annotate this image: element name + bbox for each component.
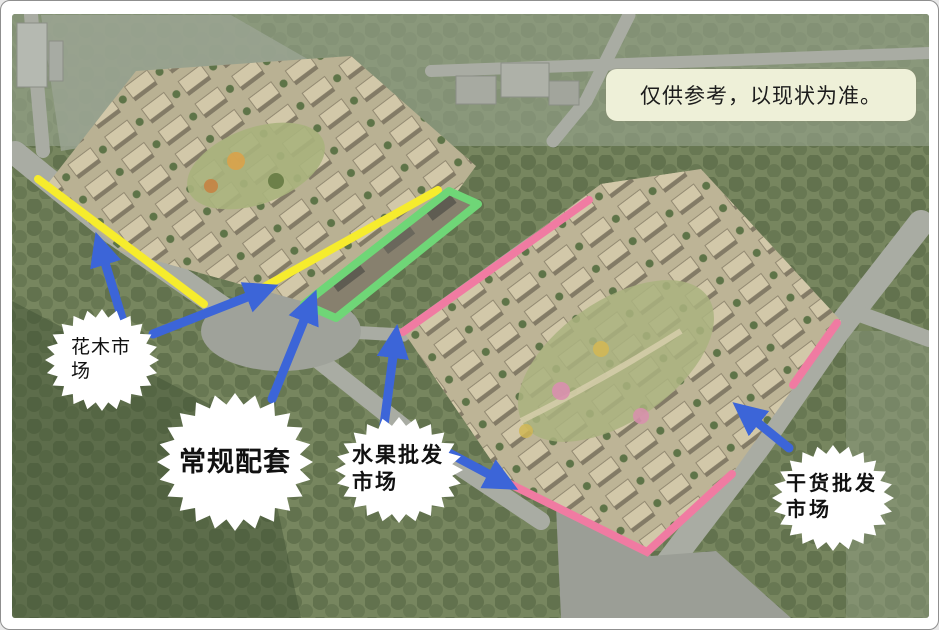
callout-general-facilities: 常规配套 [157,393,313,531]
callout-flower-market: 花木市场 [45,309,159,411]
notice-box: 仅供参考，以现状为准。 [606,69,916,121]
callout-dry-goods-market: 干货批发市场 [772,445,894,551]
notice-text: 仅供参考，以现状为准。 [640,80,882,110]
aerial-photo: 花木市场 常规配套 水果批发市场 干货批发市场 仅供参考，以现状为准。 [12,14,929,618]
callout-dry-goods-market-label: 干货批发市场 [786,472,880,523]
callout-flower-market-label: 花木市场 [71,336,133,385]
callout-fruit-market-label: 水果批发市场 [352,443,446,497]
annotated-site-plan: 花木市场 常规配套 水果批发市场 干货批发市场 仅供参考，以现状为准。 [0,0,939,630]
callout-fruit-market: 水果批发市场 [335,417,463,523]
callout-general-facilities-label: 常规配套 [179,445,291,480]
